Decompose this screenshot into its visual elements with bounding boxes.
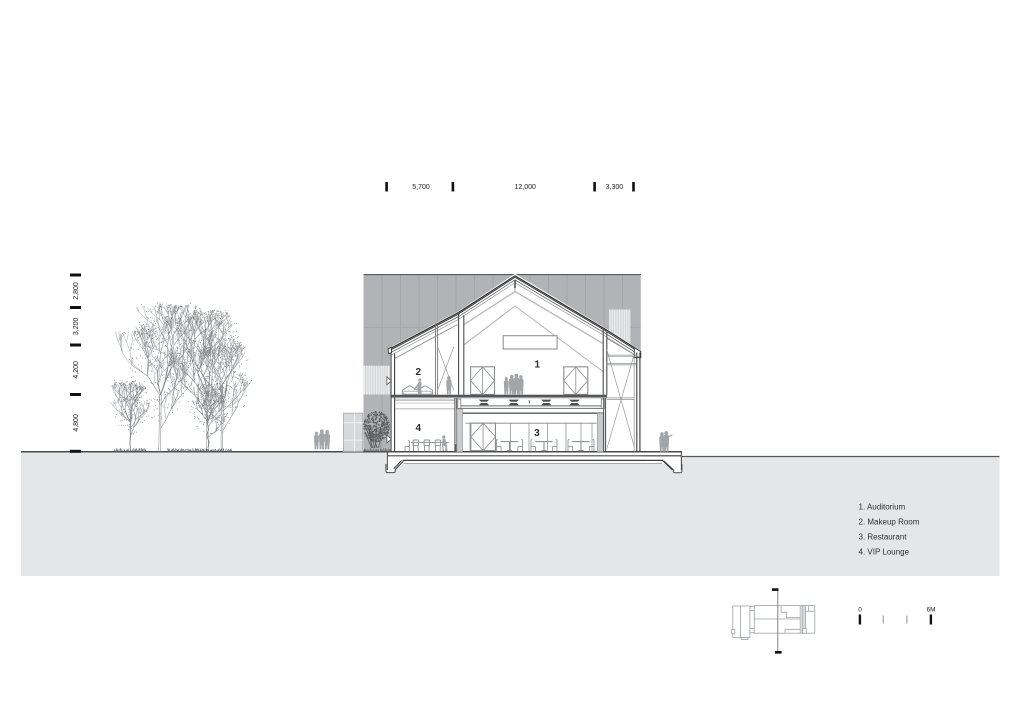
svg-text:12,000: 12,000 [514,184,536,191]
svg-text:4: 4 [416,423,422,434]
svg-text:1. Auditorium: 1. Auditorium [859,503,906,512]
svg-text:5,700: 5,700 [412,184,430,191]
svg-text:2,800: 2,800 [73,282,80,300]
svg-text:0: 0 [858,607,862,614]
svg-text:6M: 6M [926,607,935,614]
svg-text:4,800: 4,800 [73,414,80,432]
svg-text:4,200: 4,200 [73,361,80,379]
svg-text:3,200: 3,200 [73,317,80,335]
svg-text:4. VIP Lounge: 4. VIP Lounge [859,547,910,556]
svg-text:3,300: 3,300 [606,184,624,191]
svg-text:3: 3 [534,428,540,439]
svg-text:2: 2 [416,367,422,378]
svg-text:2. Makeup Room: 2. Makeup Room [859,518,920,527]
svg-text:1: 1 [535,360,541,371]
svg-text:3. Restaurant: 3. Restaurant [859,533,908,542]
